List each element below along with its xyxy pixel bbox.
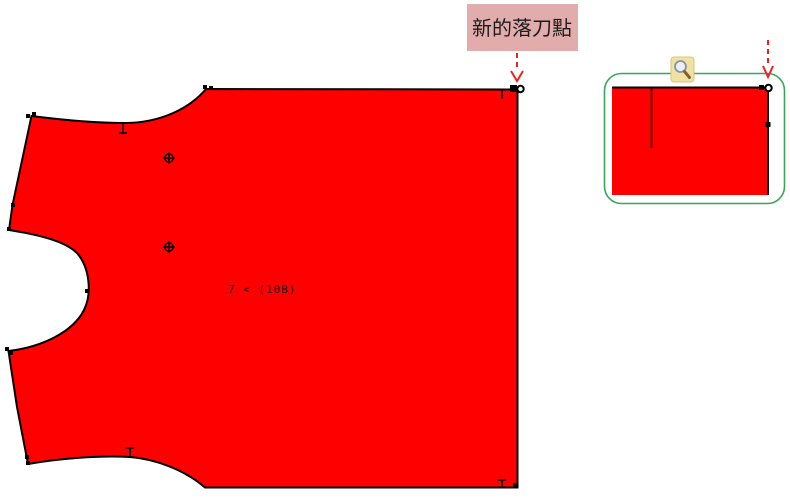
preview-piece xyxy=(612,87,771,195)
point-marker[interactable] xyxy=(25,455,29,459)
point-marker[interactable] xyxy=(85,289,89,293)
preview-piece-fill xyxy=(612,87,768,195)
drawing-area: 7 < (10B) 新的落刀點 xyxy=(0,0,790,499)
point-marker[interactable] xyxy=(7,227,11,231)
point-marker[interactable] xyxy=(203,85,207,89)
new-cut-point-marker[interactable] xyxy=(510,85,524,92)
callout: 新的落刀點 xyxy=(467,4,578,81)
magnifier-icon xyxy=(671,57,694,82)
preview-arrowhead-icon xyxy=(763,66,773,77)
point-marker[interactable] xyxy=(32,112,36,116)
preview-cut-point-square[interactable] xyxy=(759,85,764,90)
preview-edge-tick xyxy=(766,122,771,127)
piece-label: 7 < (10B) xyxy=(228,283,297,296)
preview-cut-point-circle-icon[interactable] xyxy=(765,85,771,91)
callout-label: 新的落刀點 xyxy=(472,17,572,40)
callout-arrowhead-icon xyxy=(511,71,523,81)
zoom-preview-window xyxy=(605,40,785,204)
cut-point-square[interactable] xyxy=(510,85,517,92)
point-marker[interactable] xyxy=(26,114,30,118)
cut-point-circle-icon[interactable] xyxy=(517,86,523,92)
point-marker[interactable] xyxy=(26,461,30,465)
point-marker[interactable] xyxy=(209,86,213,90)
point-marker[interactable] xyxy=(9,351,13,355)
point-marker[interactable] xyxy=(5,347,9,351)
point-marker[interactable] xyxy=(11,203,15,207)
point-marker[interactable] xyxy=(513,483,517,487)
cad-canvas: 7 < (10B) 新的落刀點 xyxy=(0,0,790,499)
